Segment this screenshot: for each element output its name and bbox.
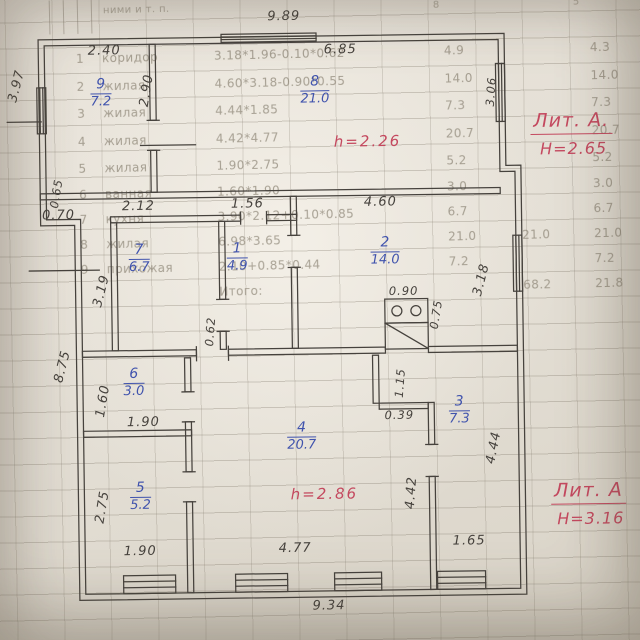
height-note-upper: h=2.26 [334,132,402,151]
room-label-3: 37.3 [449,394,470,426]
scanned-page: ними и т. п. 8 5 1коридор3.18*1.96-0.10*… [0,0,640,640]
dim-room3-width: 1.65 [453,533,486,548]
room-label-1: 14.9 [227,241,248,273]
room-area: 21.0 [300,91,329,106]
room-area: 3.0 [124,383,145,398]
stove-icon [385,298,429,349]
room-label-9: 97.2 [90,77,111,109]
room-number: 9 [90,77,111,94]
height-note-lower: h=2.86 [291,484,359,503]
room-number: 3 [449,394,470,411]
room-number: 2 [370,235,399,252]
dim-room6-width: 1.90 [127,415,160,430]
dim-bottom-total: 9.34 [312,598,345,613]
room-number: 7 [129,243,150,260]
liter-height-lower: Н=3.16 [557,508,624,528]
walls-group [38,33,527,601]
room-area: 14.0 [371,252,400,267]
room-label-8: 821.0 [300,74,329,106]
room-label-6: 63.0 [123,367,144,399]
dim-annex-width: 2.40 [88,43,121,58]
liter-height-upper: Н=2.65 [540,138,607,158]
floor-plan: 9.89 2.40 6.85 3.97 2.90 3.06 0.70 0.65 … [0,0,640,640]
liter-text: Лит. А [551,479,626,505]
liter-text: Лит. А. [530,109,612,135]
dim-nook-width: 0.39 [384,408,414,422]
room-area: 7.2 [90,94,111,109]
room-label-4: 420.7 [287,420,316,452]
room-label-7: 76.7 [129,243,150,275]
dim-kitchen-width: 2.12 [122,199,155,214]
dim-room8-width: 6.85 [324,42,357,57]
room-label-5: 55.2 [130,481,151,513]
liter-label-upper: Лит. А. [530,109,612,132]
dim-room4-width: 4.77 [279,541,312,556]
dim-stove-width: 0.90 [389,284,419,298]
dim-room5-width: 1.90 [124,544,157,559]
room-area: 6.7 [129,259,150,274]
dim-step-left: 0.70 [42,208,75,223]
room-area: 4.9 [227,258,248,273]
room-area: 5.2 [130,497,151,512]
room-number: 4 [287,420,316,437]
dim-top-total: 9.89 [267,9,300,24]
room-number: 1 [227,241,248,258]
dim-wall-small: 0.62 [202,316,218,347]
liter-label-lower: Лит. А [551,479,626,502]
room-number: 6 [123,367,144,384]
dim-room4-right-height: 4.42 [403,476,420,510]
room-area: 20.7 [287,437,316,452]
dim-hall-width: 1.56 [231,196,264,211]
room-label-2: 214.0 [370,235,399,267]
room-number: 8 [300,74,329,91]
room-number: 5 [130,481,151,498]
room-area: 7.3 [449,411,470,426]
dim-room2-width: 4.60 [364,194,397,209]
dimension-lines-group [7,120,197,272]
dim-window-right-upper: 3.06 [483,76,499,107]
dim-nook-height: 1.15 [392,368,408,399]
